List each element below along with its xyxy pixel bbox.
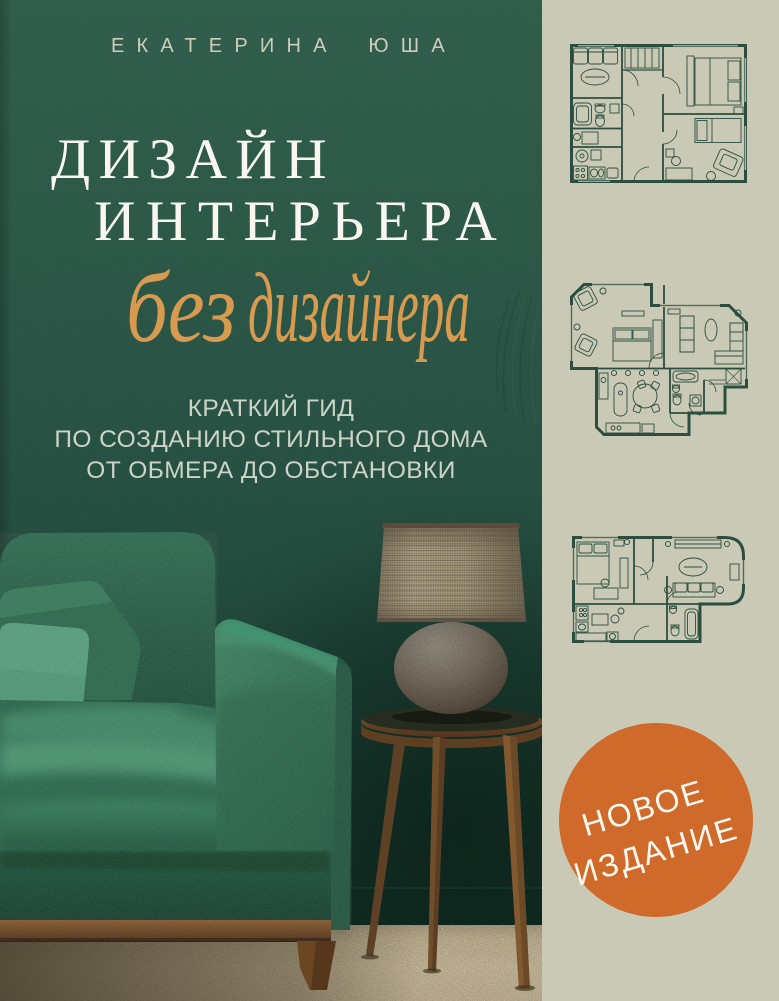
svg-text:дизайнера: дизайнера	[248, 252, 470, 363]
svg-text:без: без	[126, 252, 236, 363]
